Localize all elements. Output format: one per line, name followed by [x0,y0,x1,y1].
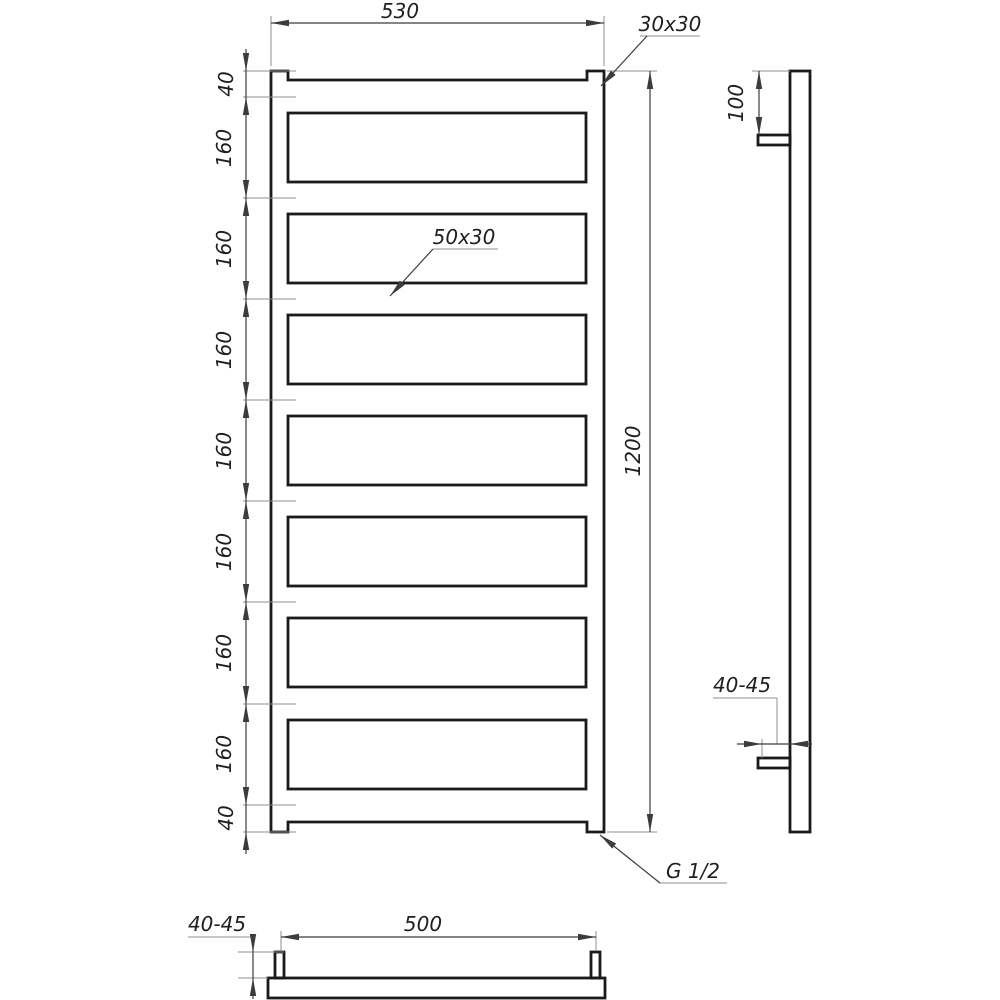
wall-bracket-right [591,952,600,978]
dimension-labels: 530 30x30 50x30 G 1/2 40-45 500 40-45 40… [188,0,771,936]
bottom-rail-profile [268,978,605,998]
dim-label-chain-seg-1: 40 [214,71,238,96]
dim-arrow-head [271,20,289,26]
dim-arrow-head [250,978,256,996]
dim-arrow-head [243,281,249,299]
drawing-canvas: 530 30x30 50x30 G 1/2 40-45 500 40-45 40… [0,0,1000,1000]
dim-label-bottom-wall-clearance: 40-45 [188,912,246,936]
front-view [271,71,604,832]
dim-label-chain-seg-6: 160 [212,533,236,571]
dim-arrow-head [756,71,762,89]
side-rail-profile [790,71,810,832]
dim-arrow-head [243,602,249,620]
rung-opening-5 [288,517,586,586]
dim-arrow-head [586,20,604,26]
dim-arrow-head [578,934,596,940]
wall-bracket-top [758,135,790,145]
dim-arrow-head [243,198,249,216]
dim-arrow-head [281,934,299,940]
dim-label-side-wall-clearance: 40-45 [713,673,771,697]
dim-arrow-head [243,704,249,722]
dim-label-thread-size: G 1/2 [666,859,720,883]
rung-opening-6 [288,618,586,687]
dim-arrow-head [647,814,653,832]
extension-lines [188,16,790,978]
rung-opening-3 [288,315,586,384]
dim-arrow-head [243,584,249,602]
dim-arrow-head [744,741,762,747]
rung-opening-4 [288,416,586,485]
dim-label-overall-height: 1200 [621,426,645,477]
side-view [758,71,810,832]
dimension-lines [246,23,812,999]
dim-arrow-head [647,71,653,89]
dim-label-chain-seg-3: 160 [212,230,236,268]
rung-opening-1 [288,113,586,182]
towel-rail-technical-drawing: 530 30x30 50x30 G 1/2 40-45 500 40-45 40… [0,0,1000,1000]
arrowheads [243,20,808,996]
dim-label-chain-seg-2: 160 [212,129,236,167]
dim-arrow-head [243,299,249,317]
wall-bracket-bottom [758,758,790,768]
dim-arrow-head [243,53,249,71]
dim-arrow-head [790,741,808,747]
dim-label-rung-profile: 50x30 [433,225,496,249]
dim-label-bracket-spacing: 500 [404,912,442,936]
dim-arrow-head [243,501,249,519]
dim-label-top-bracket-offset: 100 [724,84,748,122]
dim-arrow-head [243,400,249,418]
dim-arrow-head [243,97,249,115]
frame-outline [271,71,604,832]
dim-arrow-head [243,686,249,704]
dim-label-chain-seg-4: 160 [212,331,236,369]
dim-label-rail-profile: 30x30 [639,12,702,36]
dim-arrow-head [243,787,249,805]
dim-arrow-head [243,832,249,850]
dim-label-overall-width: 530 [381,0,419,23]
dim-arrow-head [756,117,762,135]
dim-arrow-head [243,382,249,400]
rung-opening-7 [288,720,586,789]
dim-arrow-head [243,180,249,198]
dim-arrow-head [250,934,256,952]
wall-bracket-left [275,952,284,978]
dim-label-chain-seg-5: 160 [212,432,236,470]
dim-arrow-head [243,483,249,501]
part-outlines [268,71,810,998]
bottom-view [268,952,605,998]
dim-label-chain-seg-7: 160 [212,634,236,672]
dim-label-chain-seg-9: 40 [214,805,238,830]
dim-label-chain-seg-8: 160 [212,735,236,773]
